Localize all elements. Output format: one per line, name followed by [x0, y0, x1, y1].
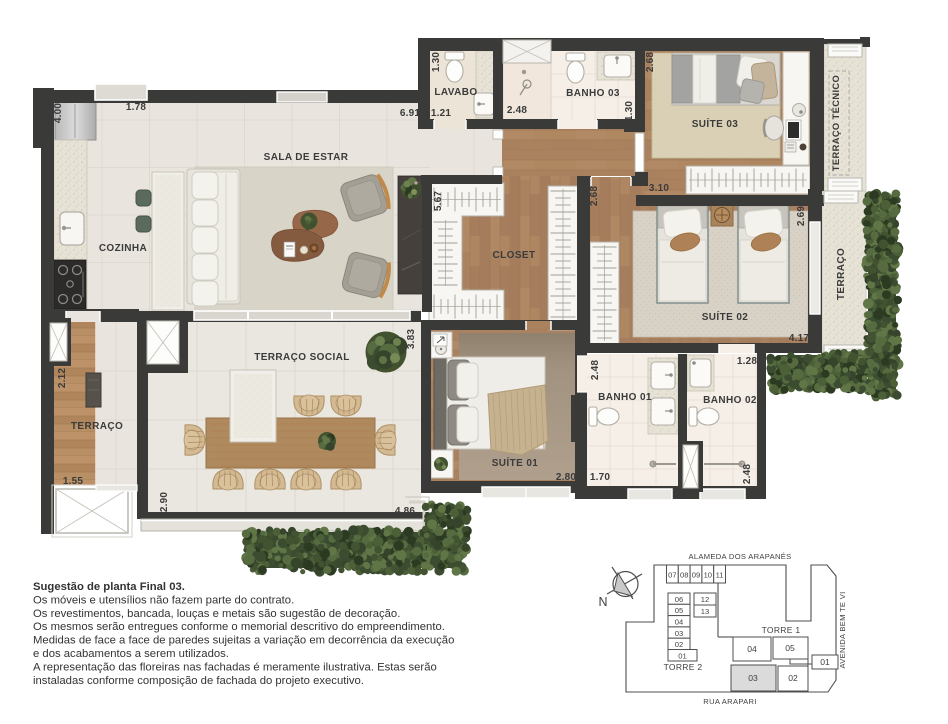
- svg-text:05: 05: [675, 606, 683, 615]
- svg-text:10: 10: [704, 571, 712, 580]
- svg-text:1.21: 1.21: [431, 108, 452, 119]
- svg-text:TERRAÇO TÉCNICO: TERRAÇO TÉCNICO: [831, 75, 841, 171]
- svg-text:BANHO 03: BANHO 03: [566, 88, 620, 99]
- svg-text:12: 12: [701, 595, 709, 604]
- svg-text:1.55: 1.55: [63, 476, 84, 487]
- svg-text:Medidas de face a face de pare: Medidas de face a face de paredes sujeit…: [33, 635, 454, 647]
- svg-text:LAVABO: LAVABO: [434, 87, 477, 98]
- svg-text:instaladas conforme composição: instaladas conforme composição de fachad…: [33, 675, 364, 687]
- svg-text:4.00: 4.00: [53, 103, 64, 124]
- svg-text:2.80: 2.80: [556, 472, 577, 483]
- svg-text:09: 09: [692, 571, 700, 580]
- svg-text:ALAMEDA DOS ARAPANÉS: ALAMEDA DOS ARAPANÉS: [689, 552, 792, 561]
- svg-text:BANHO 02: BANHO 02: [703, 395, 757, 406]
- svg-text:TERRAÇO SOCIAL: TERRAÇO SOCIAL: [254, 352, 350, 363]
- svg-text:3.10: 3.10: [649, 183, 670, 194]
- svg-text:07: 07: [668, 571, 676, 580]
- svg-text:COZINHA: COZINHA: [99, 243, 147, 254]
- svg-text:1.28: 1.28: [737, 356, 758, 367]
- svg-text:02: 02: [788, 673, 798, 683]
- svg-text:01: 01: [678, 651, 686, 660]
- svg-text:06: 06: [675, 595, 683, 604]
- svg-text:TORRE 1: TORRE 1: [762, 625, 801, 635]
- svg-text:SUÍTE 03: SUÍTE 03: [692, 117, 739, 130]
- svg-text:02: 02: [675, 640, 683, 649]
- svg-text:SUÍTE 01: SUÍTE 01: [492, 456, 539, 469]
- svg-text:2.69: 2.69: [796, 206, 807, 227]
- svg-text:e dos acabamentos a serem util: e dos acabamentos a serem utilizados.: [33, 648, 229, 660]
- svg-text:SUÍTE 02: SUÍTE 02: [702, 310, 749, 323]
- svg-text:1.78: 1.78: [126, 102, 147, 113]
- svg-text:2.68: 2.68: [589, 186, 600, 207]
- svg-text:13: 13: [701, 607, 709, 616]
- svg-text:2.68: 2.68: [645, 52, 656, 73]
- svg-text:2.48: 2.48: [507, 105, 528, 116]
- svg-text:SALA DE ESTAR: SALA DE ESTAR: [264, 152, 349, 163]
- svg-text:RUA ARAPARI: RUA ARAPARI: [703, 697, 756, 706]
- svg-text:4.86: 4.86: [395, 506, 416, 517]
- svg-text:1.30: 1.30: [624, 101, 635, 122]
- svg-text:A representação das floreiras: A representação das floreiras nas fachad…: [33, 661, 437, 673]
- svg-text:2.48: 2.48: [590, 360, 601, 381]
- svg-text:2.48: 2.48: [742, 464, 753, 485]
- svg-text:TERRAÇO: TERRAÇO: [836, 248, 847, 300]
- svg-text:08: 08: [680, 571, 688, 580]
- svg-text:03: 03: [675, 629, 683, 638]
- svg-text:6.91: 6.91: [400, 108, 421, 119]
- svg-text:TERRAÇO: TERRAÇO: [71, 421, 123, 432]
- svg-text:2.90: 2.90: [159, 492, 170, 513]
- svg-text:04: 04: [675, 617, 683, 626]
- svg-text:1.30: 1.30: [431, 52, 442, 73]
- svg-text:TORRE 2: TORRE 2: [664, 662, 703, 672]
- svg-text:11: 11: [716, 571, 724, 580]
- svg-text:Os móveis e utensílios não faz: Os móveis e utensílios não fazem parte d…: [33, 594, 294, 606]
- svg-text:3.83: 3.83: [406, 329, 417, 350]
- svg-text:CLOSET: CLOSET: [493, 250, 536, 261]
- svg-text:AVENIDA BEM TE VI: AVENIDA BEM TE VI: [838, 592, 847, 669]
- svg-text:2.12: 2.12: [57, 368, 68, 389]
- svg-text:03: 03: [748, 673, 758, 683]
- svg-text:BANHO 01: BANHO 01: [598, 392, 652, 403]
- svg-text:01: 01: [820, 657, 830, 667]
- svg-text:Os mesmos serão entregues conf: Os mesmos serão entregues conforme o mem…: [33, 621, 445, 633]
- svg-text:4.17: 4.17: [789, 333, 810, 344]
- svg-text:Os revestimentos, bancada, lou: Os revestimentos, bancada, louças e meta…: [33, 608, 400, 620]
- svg-text:05: 05: [785, 643, 795, 653]
- svg-text:04: 04: [747, 644, 757, 654]
- svg-text:5.67: 5.67: [433, 191, 444, 212]
- svg-text:N: N: [598, 595, 607, 609]
- svg-text:1.70: 1.70: [590, 472, 611, 483]
- svg-text:Sugestão de planta Final 03.: Sugestão de planta Final 03.: [33, 581, 185, 593]
